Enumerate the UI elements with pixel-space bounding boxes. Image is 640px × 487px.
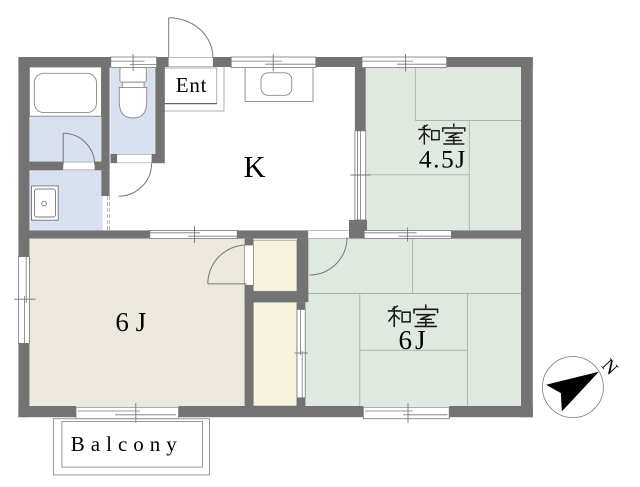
svg-text:Ent: Ent	[176, 73, 208, 97]
svg-text:4.5J: 4.5J	[419, 145, 467, 174]
svg-text:K: K	[243, 150, 265, 184]
svg-text:6 J: 6 J	[115, 307, 146, 337]
svg-text:Balcony: Balcony	[71, 432, 183, 456]
svg-text:6J: 6J	[398, 325, 428, 355]
